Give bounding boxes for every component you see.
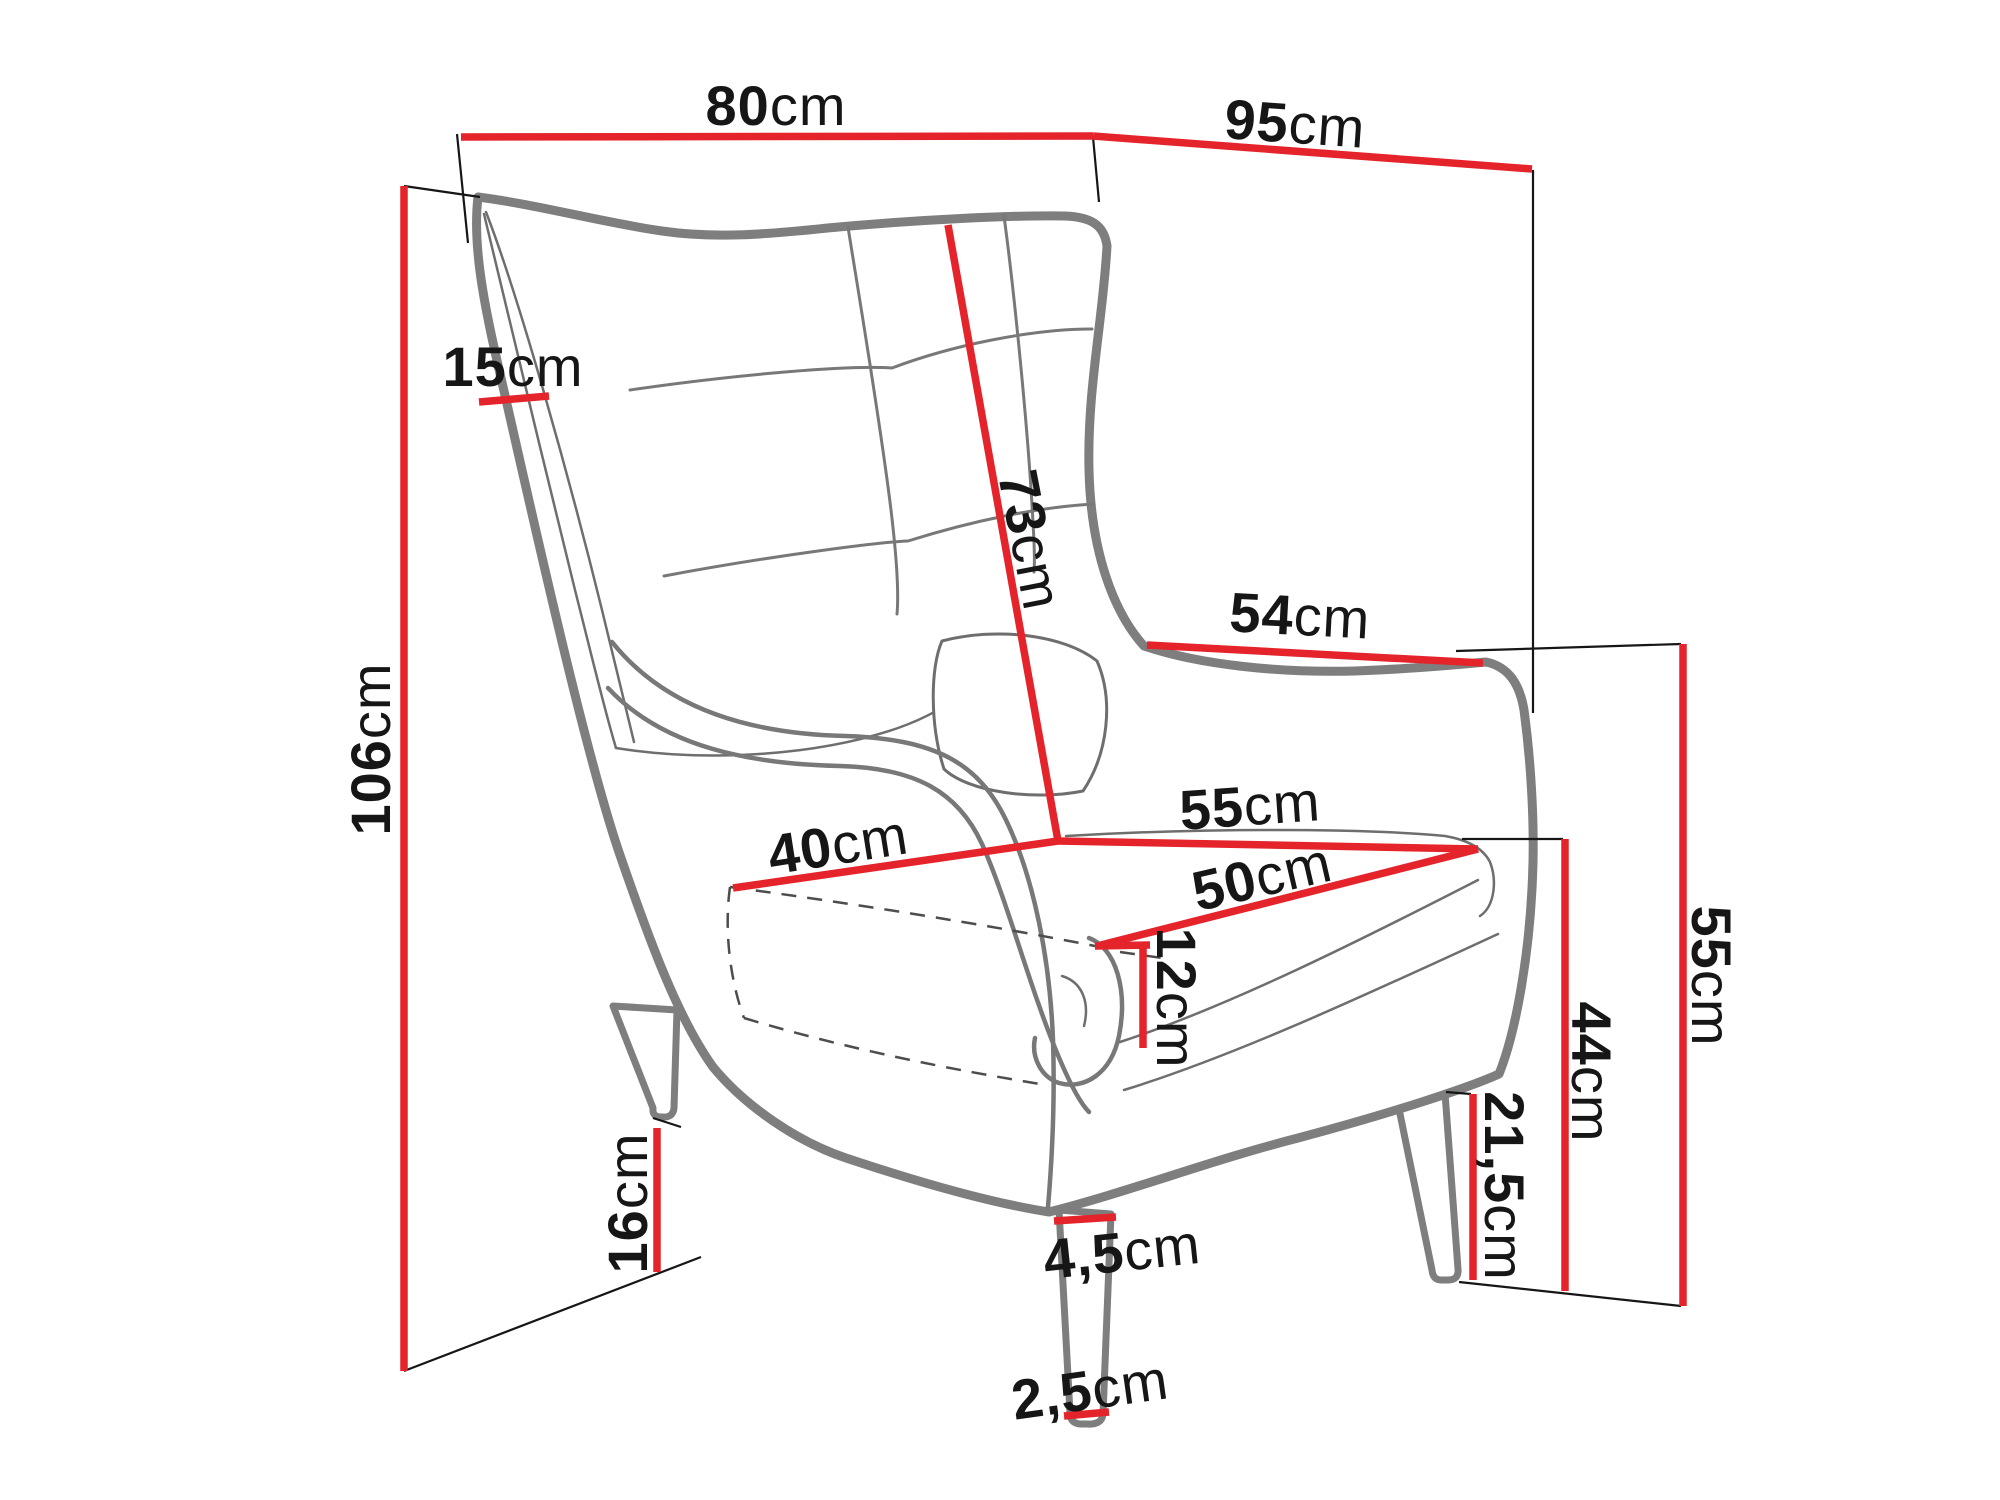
extension-height-top (404, 186, 480, 197)
dimension-diagram: 80cm 95cm 106cm 15cm 73cm 54cm 55cm 40cm… (0, 0, 2000, 1500)
extension-armrest-right (1456, 644, 1681, 651)
dim-label-106cm: 106cm (343, 662, 399, 835)
floor-line-left (404, 1257, 701, 1371)
leg-back-left (613, 1006, 677, 1117)
dim-label-44cm: 44cm (1563, 1002, 1619, 1143)
dim-tick-12cm (1095, 945, 1150, 946)
dim-label-80cm: 80cm (706, 78, 847, 134)
floor-line-right (1459, 1282, 1681, 1306)
dim-label-15cm: 15cm (443, 339, 584, 395)
extension-top-middle (1093, 137, 1099, 202)
extension-top-left (457, 134, 468, 243)
dim-label-55cm-right: 55cm (1683, 906, 1739, 1047)
lumbar-pillow (933, 634, 1106, 795)
dim-label-12cm: 12cm (1148, 928, 1204, 1069)
dim-label-16cm: 16cm (600, 1133, 656, 1274)
dim-label-54cm: 54cm (1228, 584, 1372, 647)
leg-right (1399, 1093, 1458, 1280)
dim-label-95cm: 95cm (1223, 91, 1368, 157)
dim-label-21-5cm: 21,5cm (1476, 1091, 1532, 1281)
armchair-line-drawing (0, 0, 2000, 1500)
dim-label-55cm-seat: 55cm (1178, 773, 1323, 839)
